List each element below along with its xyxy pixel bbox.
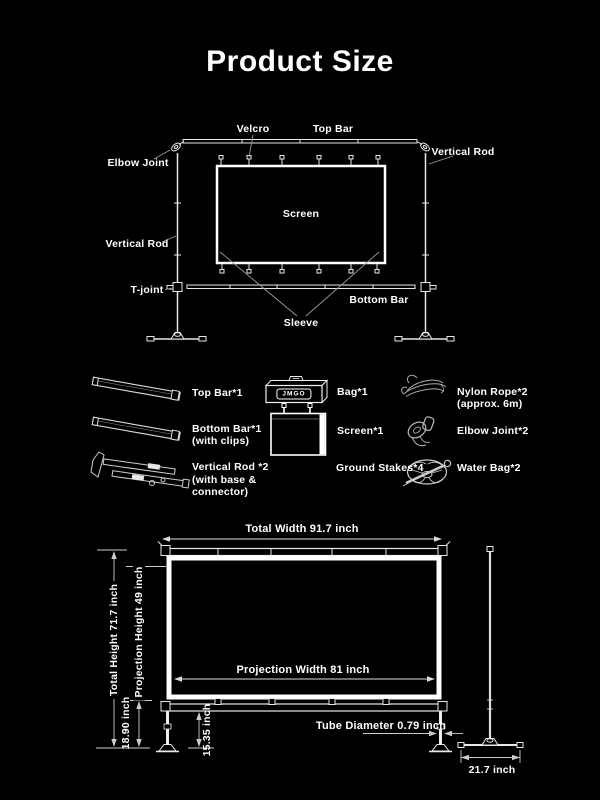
tube-diameter-label: Tube Diameter 0.79 inch	[316, 720, 446, 732]
total-height-label: Total Height 71.7 inch	[108, 581, 120, 699]
sleeve-label: Sleeve	[284, 317, 318, 329]
part-nylon-rope-note: (approx. 6m)	[457, 398, 522, 410]
assembly-elbow-right	[419, 142, 431, 153]
part-top-bar-label: Top Bar*1	[192, 387, 243, 399]
page-title: Product Size	[206, 45, 394, 79]
part-vertical-rod-note2: connector)	[192, 486, 248, 498]
dimension-figure-artwork	[96, 536, 523, 763]
elbow-joint-icon	[405, 416, 435, 446]
screen-label: Screen	[283, 208, 319, 220]
part-bottom-bar-label: Bottom Bar*1	[192, 423, 262, 435]
projection-width-label: Projection Width 81 inch	[236, 664, 369, 676]
t-joint-label: T-joint	[131, 284, 164, 296]
part-bag-label: Bag*1	[337, 386, 368, 398]
top-bar-label: Top Bar	[313, 123, 353, 135]
part-vertical-rod-note1: (with base &	[192, 474, 256, 486]
frame-to-ground-label: 18.90 inch	[120, 697, 132, 750]
part-elbow-joint-label: Elbow Joint*2	[457, 425, 528, 437]
assembly-figure-artwork	[147, 135, 454, 341]
projection-height-label: Projection Height 49 inch	[133, 563, 145, 700]
bottom-bar-label: Bottom Bar	[349, 294, 408, 306]
side-view-pole	[458, 547, 523, 764]
assembly-elbow-left	[170, 142, 182, 153]
vertical-rod-icon	[91, 452, 189, 488]
base-width-label: 21.7 inch	[469, 764, 516, 776]
part-nylon-rope-label: Nylon Rope*2	[457, 386, 528, 398]
bag-logo: JMGO	[276, 389, 311, 400]
part-water-bag-label: Water Bag*2	[457, 462, 521, 474]
product-size-infographic: Product Size Velcro Top Bar Elbow Joint …	[0, 0, 600, 800]
part-screen-label: Screen*1	[337, 425, 384, 437]
total-width-label: Total Width 91.7 inch	[245, 523, 358, 535]
part-ground-stakes-label: Ground Stakes*4	[336, 462, 424, 474]
part-vertical-rod-label: Vertical Rod *2	[192, 461, 269, 473]
vertical-rod-left-label: Vertical Rod	[105, 238, 168, 250]
elbow-joint-label: Elbow Joint	[107, 157, 168, 169]
bar-to-ground-label: 15.35 inch	[201, 704, 213, 757]
top-bar-icon	[92, 376, 180, 400]
vertical-rod-right-label: Vertical Rod	[431, 146, 494, 158]
velcro-label: Velcro	[237, 123, 270, 135]
bottom-bar-icon	[92, 416, 180, 440]
velcro-tabs-top	[219, 156, 380, 166]
screen-icon	[271, 404, 326, 456]
part-bottom-bar-note: (with clips)	[192, 435, 249, 447]
nylon-rope-icon	[402, 375, 446, 396]
